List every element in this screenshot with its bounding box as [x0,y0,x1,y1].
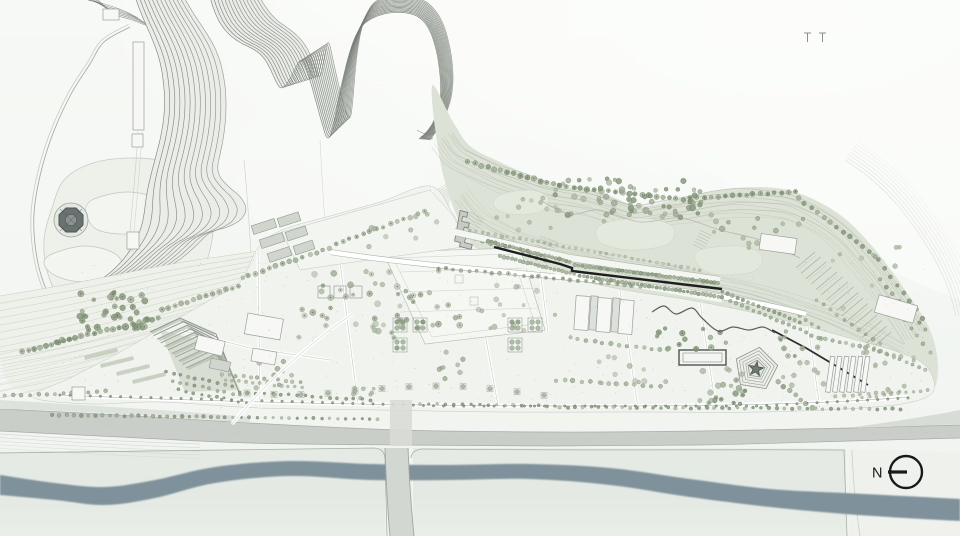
svg-text:N: N [872,466,882,482]
